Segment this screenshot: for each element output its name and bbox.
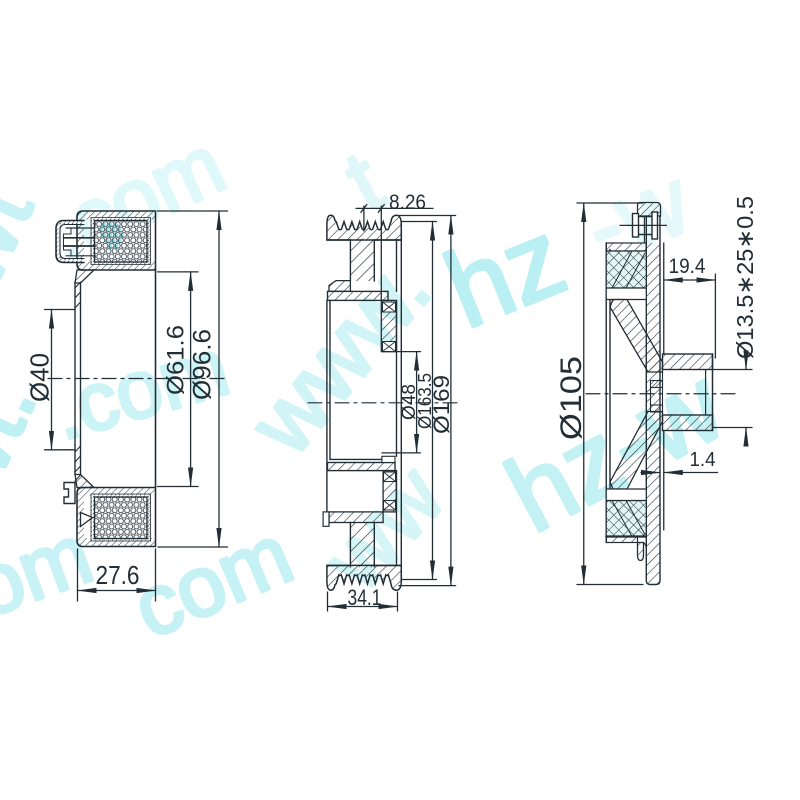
svg-text:Ø40: Ø40 bbox=[25, 353, 55, 402]
svg-text:Ø13.5∗25∗0.5: Ø13.5∗25∗0.5 bbox=[732, 196, 758, 359]
svg-text:34.1: 34.1 bbox=[348, 585, 382, 610]
svg-text:Ø169: Ø169 bbox=[429, 375, 454, 434]
svg-text:Ø96.6: Ø96.6 bbox=[189, 329, 217, 400]
svg-text:19.4: 19.4 bbox=[669, 255, 706, 278]
svg-text:Ø61.6: Ø61.6 bbox=[163, 325, 190, 395]
svg-text:27.6: 27.6 bbox=[96, 560, 140, 590]
svg-text:8.26: 8.26 bbox=[389, 191, 426, 214]
svg-text:Ø105: Ø105 bbox=[555, 356, 588, 440]
svg-text:1.4: 1.4 bbox=[690, 449, 716, 471]
